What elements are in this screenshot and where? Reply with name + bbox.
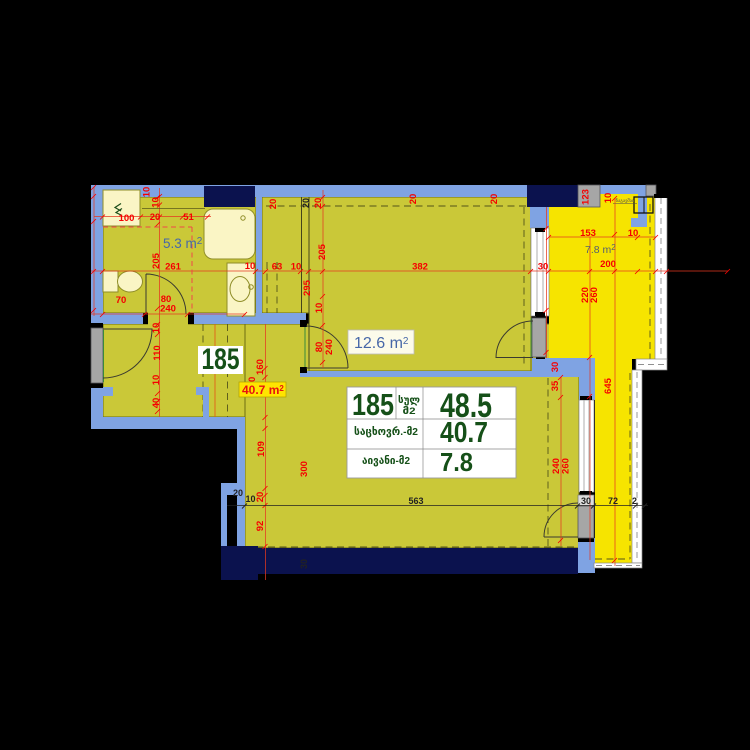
svg-text:საცხოვრ.-მ2: საცხოვრ.-მ2	[354, 426, 418, 438]
svg-text:261: 261	[165, 262, 182, 273]
svg-text:10: 10	[628, 228, 639, 239]
svg-text:70: 70	[116, 295, 127, 306]
svg-text:382: 382	[412, 262, 428, 273]
svg-text:300: 300	[299, 461, 310, 477]
svg-text:20: 20	[489, 194, 500, 205]
svg-text:20: 20	[268, 199, 279, 210]
svg-text:20: 20	[313, 198, 324, 209]
svg-text:205: 205	[317, 243, 328, 260]
svg-text:92: 92	[255, 521, 266, 532]
svg-text:63: 63	[272, 262, 283, 273]
svg-text:10: 10	[314, 303, 325, 314]
svg-text:10: 10	[245, 261, 256, 272]
svg-text:51: 51	[183, 212, 194, 223]
svg-text:40.7 m2: 40.7 m2	[242, 383, 284, 397]
svg-text:20: 20	[255, 492, 266, 503]
svg-text:სულ: სულ	[398, 395, 420, 406]
svg-text:20: 20	[301, 198, 311, 208]
svg-text:40.7: 40.7	[440, 417, 488, 449]
svg-text:მ2: მ2	[403, 406, 416, 417]
svg-text:205: 205	[151, 252, 162, 269]
svg-text:ნაგავშაი: ნაგავშაი	[616, 197, 635, 203]
svg-text:295: 295	[302, 279, 313, 296]
svg-text:100: 100	[119, 213, 135, 224]
svg-text:10: 10	[151, 197, 162, 208]
svg-text:20: 20	[408, 194, 419, 205]
svg-text:7.8: 7.8	[440, 447, 473, 477]
svg-text:10: 10	[291, 262, 302, 273]
svg-text:123: 123	[581, 189, 592, 205]
svg-text:240: 240	[160, 304, 176, 315]
svg-text:260: 260	[561, 458, 572, 474]
svg-text:30: 30	[581, 496, 591, 506]
svg-text:110: 110	[152, 345, 163, 360]
svg-text:10: 10	[142, 187, 153, 198]
svg-text:40: 40	[151, 398, 162, 409]
svg-text:10: 10	[151, 323, 162, 334]
svg-text:240: 240	[324, 339, 335, 355]
svg-text:30: 30	[299, 559, 309, 569]
svg-text:35: 35	[550, 380, 561, 391]
svg-text:185: 185	[202, 343, 240, 376]
svg-text:12.6 m2: 12.6 m2	[354, 335, 409, 352]
svg-text:10: 10	[603, 193, 614, 204]
svg-text:10: 10	[151, 375, 162, 386]
svg-text:აივანი-მ2: აივანი-მ2	[362, 455, 410, 467]
svg-text:30: 30	[538, 262, 549, 273]
svg-text:109: 109	[256, 441, 267, 457]
svg-text:200: 200	[600, 259, 616, 270]
svg-text:563: 563	[408, 496, 423, 506]
svg-text:72: 72	[608, 496, 618, 506]
svg-text:153: 153	[580, 228, 596, 239]
svg-text:2: 2	[632, 496, 637, 506]
svg-text:160: 160	[255, 359, 266, 375]
svg-text:185: 185	[352, 387, 394, 422]
svg-text:260: 260	[589, 287, 600, 303]
svg-text:30: 30	[550, 362, 561, 373]
svg-text:10: 10	[245, 494, 255, 504]
svg-text:645: 645	[603, 377, 614, 394]
svg-text:20: 20	[150, 212, 161, 223]
svg-text:20: 20	[233, 488, 243, 498]
